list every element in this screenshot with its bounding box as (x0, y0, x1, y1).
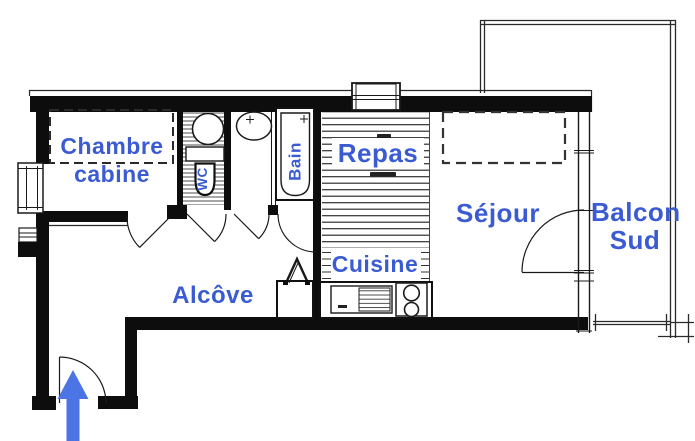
room-label-sejour: Séjour (447, 200, 549, 226)
stove-icon (396, 283, 427, 317)
sejour-bed-dashed (443, 112, 565, 163)
room-label-cuisine: Cuisine (322, 253, 428, 276)
entrance-arrow-icon (58, 370, 89, 441)
room-label-wc: WC (196, 159, 214, 199)
room-label-balcon-line2: Sud (591, 227, 679, 253)
room-label-bain: Bain (287, 139, 304, 185)
room-label-repas: Repas (332, 138, 424, 169)
sink-basin-icon (237, 112, 272, 140)
room-label-balcon-line1: Balcon (591, 199, 679, 225)
wall-vent (18, 228, 37, 257)
chambre-window (18, 163, 43, 213)
room-label-chambre-line1: Chambre (52, 135, 172, 158)
kitchen-counter (320, 282, 432, 318)
room-label-alcove: Alcôve (169, 284, 257, 308)
sink-drain-mark (338, 305, 347, 308)
repas-floor-hatch (322, 112, 430, 248)
sink-drainer (359, 288, 390, 311)
balcony-outline (480, 20, 694, 343)
room-label-chambre-line2: cabine (52, 163, 172, 186)
closet-icon (277, 259, 313, 318)
duct (352, 83, 400, 110)
floor-plan: Chambre cabine WC Bain Repas Cuisine Séj… (0, 0, 695, 441)
